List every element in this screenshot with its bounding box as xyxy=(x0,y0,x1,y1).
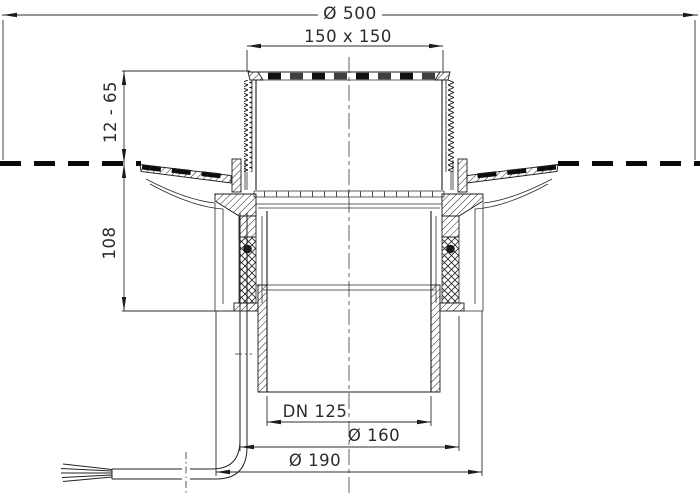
flange-right-upturn xyxy=(458,159,467,192)
dim-grate-size: 150 x 150 xyxy=(247,27,443,71)
cable-sheath xyxy=(112,469,182,479)
spigot-wall-left xyxy=(258,285,267,392)
dim-label-height-adjust: 12 - 65 xyxy=(101,81,120,143)
dim-label-grate-size: 150 x 150 xyxy=(304,27,392,46)
drain-cross-section-drawing: Ø 500 150 x 150 12 - 65 108 DN 125 xyxy=(0,0,700,496)
riser-thread-right xyxy=(446,80,454,172)
body-silhouette-left-inner xyxy=(150,184,223,304)
body-wall-right xyxy=(442,216,459,237)
flange-right-strip xyxy=(467,165,558,184)
dim-spigot-od: Ø 160 xyxy=(240,316,459,451)
flange-left-strip xyxy=(140,165,231,184)
grate-corner-right xyxy=(435,72,450,80)
dim-label-spigot-od: Ø 160 xyxy=(348,426,400,445)
body-silhouette-right-inner xyxy=(475,184,548,304)
grate-corner-left xyxy=(248,72,263,80)
spigot-wall-right xyxy=(431,285,440,392)
outlet-spigot xyxy=(256,285,440,392)
o-ring-right xyxy=(446,245,455,254)
body-bottom-left xyxy=(234,303,258,311)
technical-drawing-canvas: Ø 500 150 x 150 12 - 65 108 DN 125 xyxy=(0,0,700,496)
body-step-left xyxy=(215,194,256,216)
dim-height-adjust: 12 - 65 xyxy=(101,71,250,163)
dim-label-top-diameter: Ø 500 xyxy=(323,4,377,24)
dim-label-body-od: Ø 190 xyxy=(289,451,341,470)
membrane-layer xyxy=(0,164,700,178)
seat-rib-ticks xyxy=(262,192,436,198)
grate-slot-pattern xyxy=(268,73,435,80)
flange-left-upturn xyxy=(232,159,241,192)
riser-thread-left xyxy=(244,80,252,172)
body-bottom-right xyxy=(440,303,464,311)
dim-label-outlet: DN 125 xyxy=(283,402,348,421)
dim-label-install-depth: 108 xyxy=(100,227,119,260)
body-step-right xyxy=(442,194,483,216)
cable-wire-strands xyxy=(61,464,112,482)
